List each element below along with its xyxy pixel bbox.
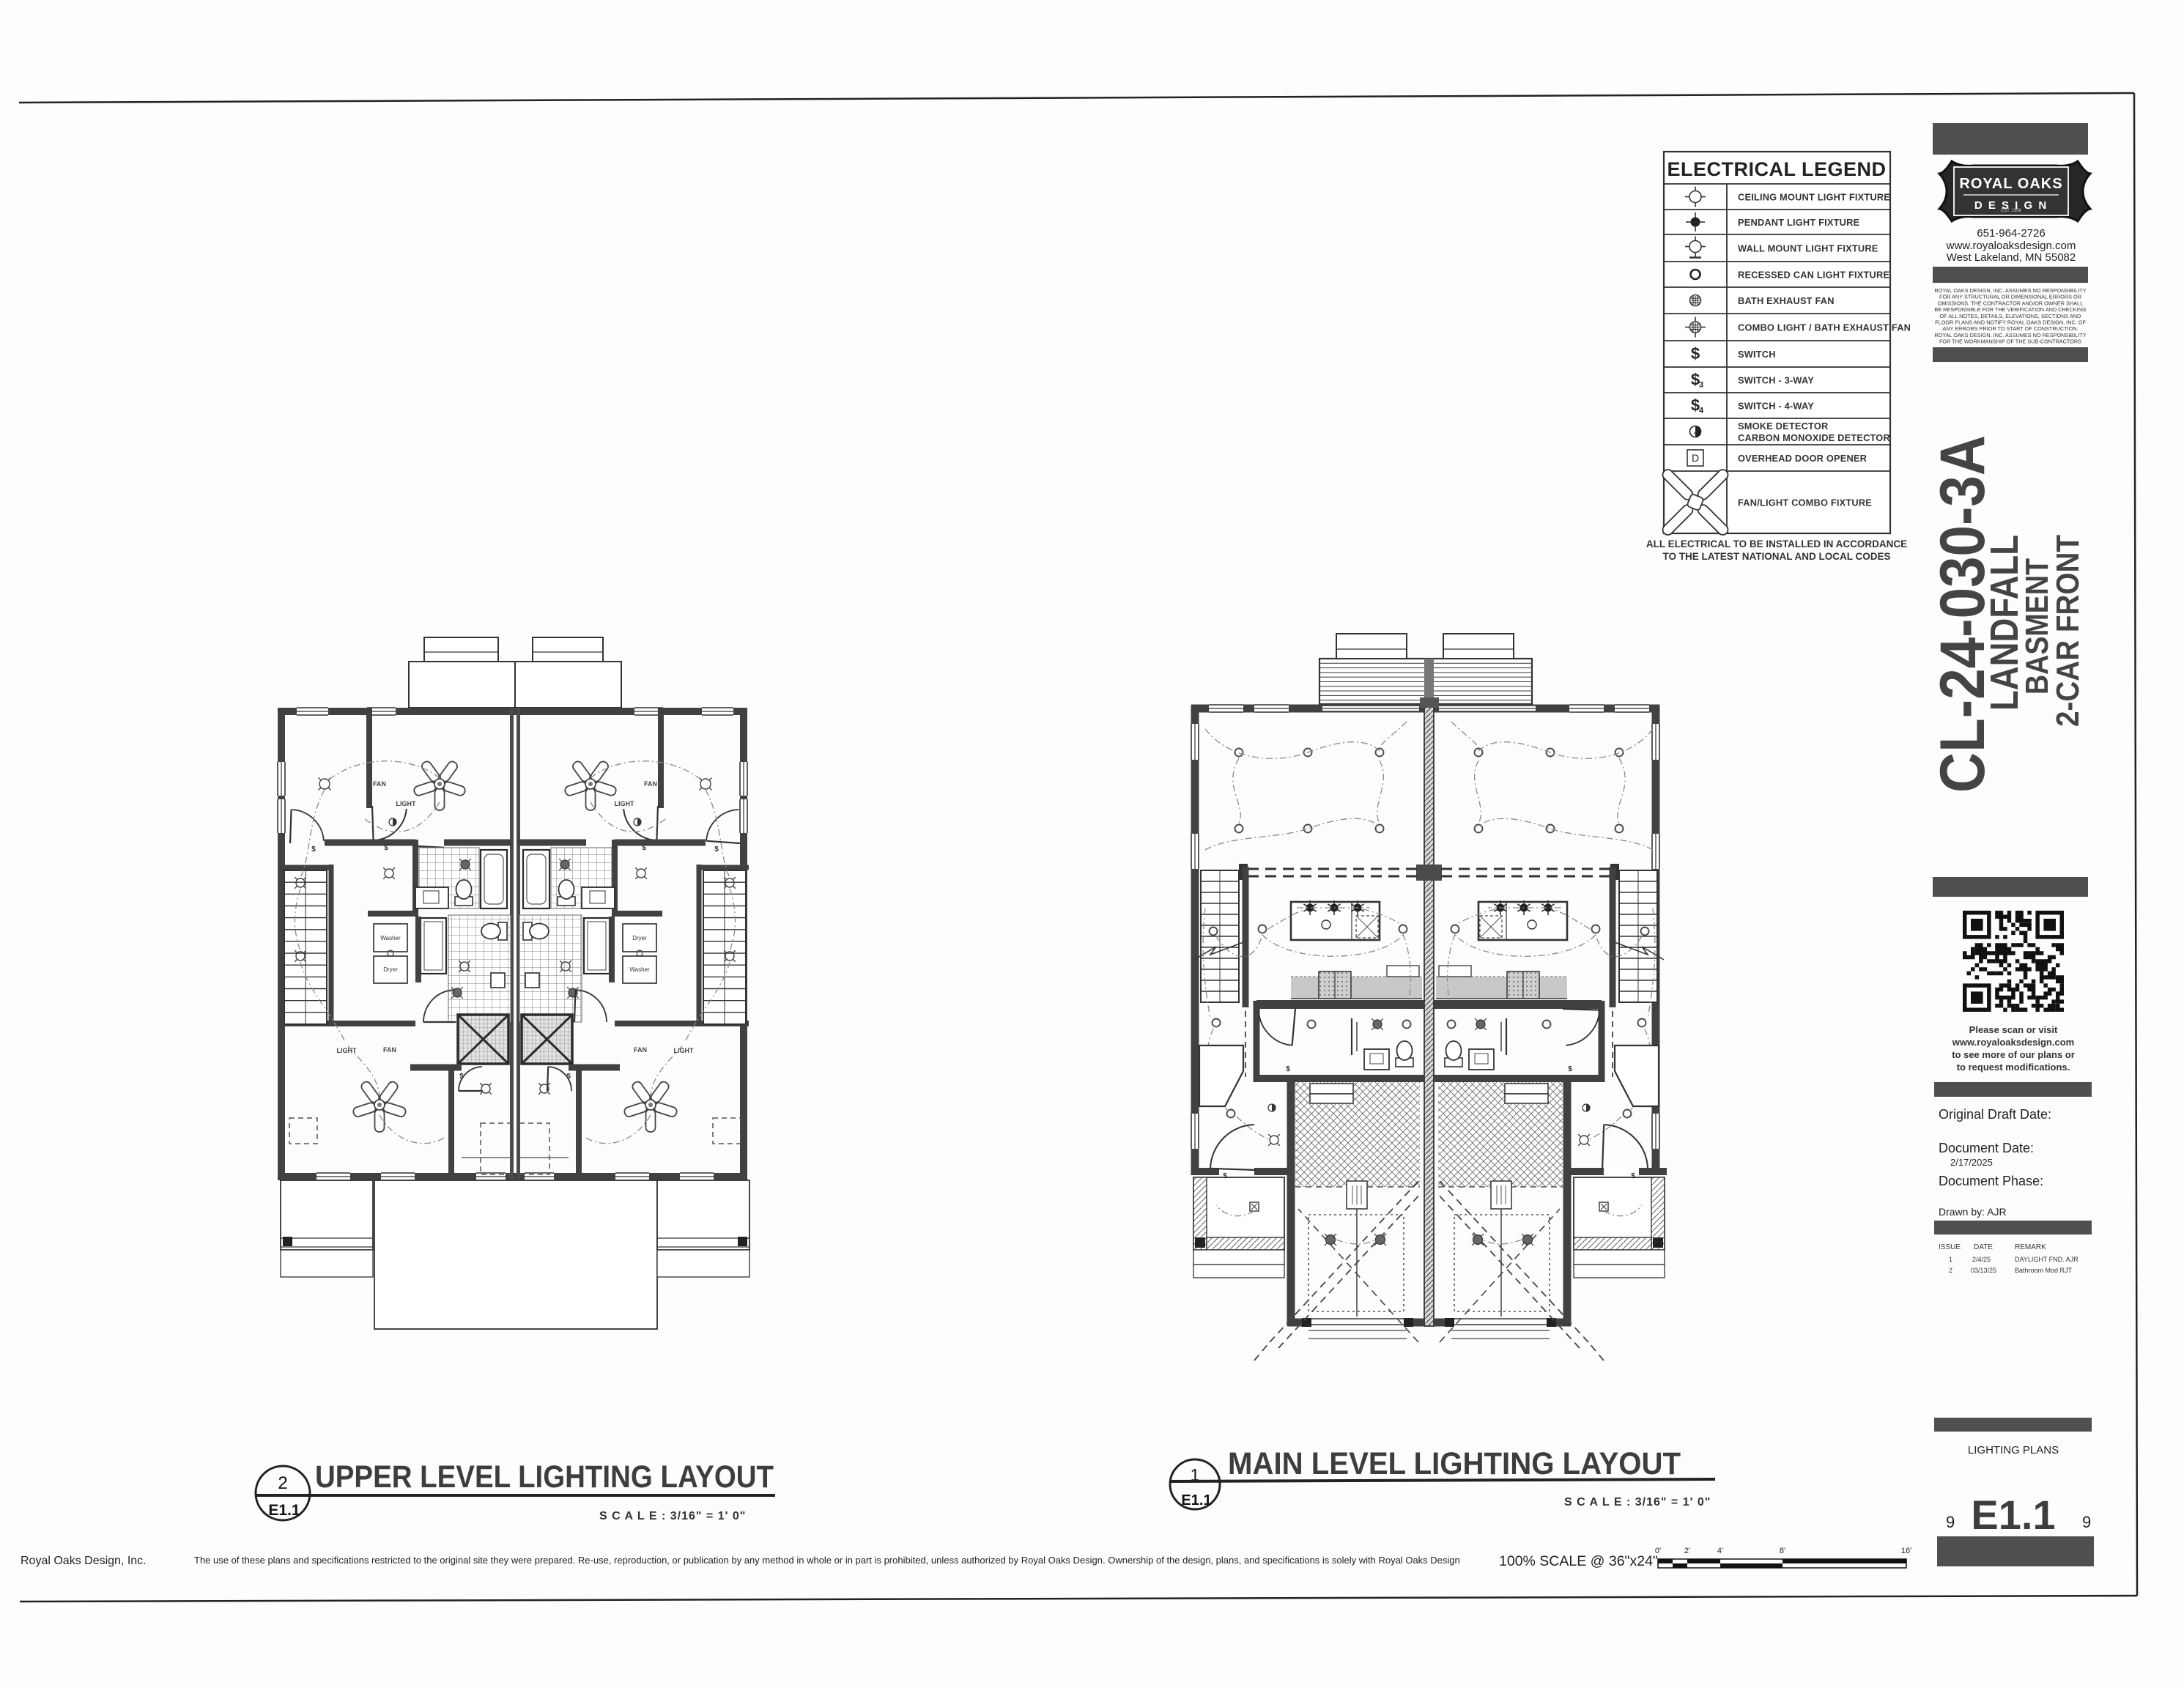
svg-text:651-964-2726: 651-964-2726 [1977, 227, 2045, 240]
svg-text:LIGHT: LIGHT [337, 1047, 357, 1054]
svg-text:3: 3 [1699, 381, 1703, 390]
svg-text:$: $ [1286, 1065, 1290, 1073]
svg-text:4: 4 [1699, 407, 1704, 415]
svg-text:Drawn by: AJR: Drawn by: AJR [1939, 1206, 2007, 1218]
svg-text:CEILING MOUNT LIGHT FIXTURE: CEILING MOUNT LIGHT FIXTURE [1738, 192, 1890, 203]
svg-text:$: $ [311, 845, 316, 854]
svg-text:RECESSED CAN LIGHT FIXTURE: RECESSED CAN LIGHT FIXTURE [1738, 270, 1889, 281]
svg-text:FOR THE WORKMANSHIP OF THE SUB: FOR THE WORKMANSHIP OF THE SUB-CONTRACTO… [1939, 338, 2081, 345]
svg-text:4': 4' [1717, 1547, 1723, 1555]
svg-text:FLOOR PLANS AND NOTIFY ROYAL O: FLOOR PLANS AND NOTIFY ROYAL OAKS DESIGN… [1935, 319, 2086, 326]
svg-text:EST. 1996: EST. 1996 [2001, 209, 2021, 213]
svg-text:FAN/LIGHT COMBO FIXTURE: FAN/LIGHT COMBO FIXTURE [1738, 497, 1872, 508]
svg-text:SWITCH - 4-WAY: SWITCH - 4-WAY [1738, 401, 1814, 412]
svg-text:ROYAL OAKS DESIGN, INC. ASSUME: ROYAL OAKS DESIGN, INC. ASSUMES NO RESPO… [1934, 332, 2086, 338]
svg-text:OF ALL NOTES, DETAILS, ELEVATI: OF ALL NOTES, DETAILS, ELEVATIONS, SECTI… [1940, 313, 2081, 319]
svg-text:Dryer: Dryer [632, 935, 647, 941]
svg-text:ISSUE: ISSUE [1939, 1243, 1961, 1251]
svg-text:FAN: FAN [634, 1046, 647, 1054]
svg-text:Bathroom Mod RJT: Bathroom Mod RJT [2015, 1267, 2073, 1274]
svg-text:100% SCALE @ 36"x24": 100% SCALE @ 36"x24" [1499, 1553, 1658, 1569]
svg-text:COMBO LIGHT / BATH EXHAUST FAN: COMBO LIGHT / BATH EXHAUST FAN [1738, 322, 1911, 333]
svg-text:S C A L E : 3/16" = 1' 0": S C A L E : 3/16" = 1' 0" [599, 1510, 746, 1522]
svg-text:Please scan or visit: Please scan or visit [1969, 1024, 2058, 1035]
svg-text:UPPER LEVEL LIGHTING LAYOUT: UPPER LEVEL LIGHTING LAYOUT [315, 1459, 774, 1495]
svg-text:2': 2' [1684, 1547, 1690, 1555]
svg-text:FAN: FAN [373, 780, 386, 788]
svg-text:$: $ [459, 1073, 464, 1081]
svg-text:E1.1: E1.1 [1181, 1492, 1211, 1509]
svg-text:E1.1: E1.1 [1971, 1492, 2055, 1538]
svg-text:$: $ [714, 845, 719, 854]
svg-text:Dryer: Dryer [383, 966, 398, 973]
svg-text:Washer: Washer [380, 935, 401, 941]
svg-text:BE RESPONSIBLE FOR THE VERIFIC: BE RESPONSIBLE FOR THE VERIFICATION AND … [1934, 306, 2087, 313]
svg-text:1: 1 [1949, 1256, 1952, 1263]
svg-text:LIGHT: LIGHT [615, 800, 634, 807]
svg-text:$: $ [1631, 1172, 1635, 1180]
svg-text:FAN: FAN [644, 780, 657, 788]
svg-text:www.royaloaksdesign.com: www.royaloaksdesign.com [1952, 1037, 2074, 1048]
svg-text:2/4/25: 2/4/25 [1972, 1256, 1991, 1263]
svg-text:9: 9 [2082, 1513, 2091, 1531]
svg-text:9: 9 [1946, 1513, 1955, 1531]
svg-text:E1.1: E1.1 [268, 1502, 300, 1519]
svg-text:16': 16' [1901, 1547, 1911, 1555]
svg-text:OVERHEAD DOOR OPENER: OVERHEAD DOOR OPENER [1738, 453, 1867, 464]
svg-text:0': 0' [1655, 1547, 1661, 1555]
svg-text:Washer: Washer [629, 966, 650, 973]
svg-text:BATH EXHAUST FAN: BATH EXHAUST FAN [1738, 295, 1835, 306]
svg-text:$: $ [1691, 344, 1700, 363]
svg-text:8': 8' [1780, 1547, 1785, 1555]
svg-text:LIGHT: LIGHT [396, 800, 416, 807]
svg-text:www.royaloaksdesign.com: www.royaloaksdesign.com [1946, 240, 2076, 252]
svg-text:$: $ [384, 844, 388, 852]
svg-text:2: 2 [1949, 1267, 1952, 1274]
svg-text:Original Draft Date:: Original Draft Date: [1939, 1107, 2051, 1122]
svg-text:to request modifications.: to request modifications. [1957, 1062, 2070, 1073]
svg-text:2-CAR FRONT: 2-CAR FRONT [2050, 535, 2086, 727]
svg-text:Royal Oaks Design, Inc.: Royal Oaks Design, Inc. [21, 1555, 147, 1567]
svg-text:ROYAL OAKS DESIGN, INC. ASSUME: ROYAL OAKS DESIGN, INC. ASSUMES NO RESPO… [1934, 287, 2086, 294]
svg-text:$: $ [642, 844, 646, 852]
svg-text:S C A L E : 3/16" = 1' 0": S C A L E : 3/16" = 1' 0" [1564, 1496, 1711, 1509]
svg-text:LIGHTING PLANS: LIGHTING PLANS [1968, 1444, 2059, 1456]
svg-text:PENDANT LIGHT FIXTURE: PENDANT LIGHT FIXTURE [1738, 217, 1860, 228]
svg-text:OMISSIONS. THE CONTRACTOR AND: OMISSIONS. THE CONTRACTOR AND/OR OWNER S… [1938, 300, 2083, 306]
svg-text:2: 2 [278, 1473, 287, 1493]
svg-text:CARBON MONOXIDE DETECTOR: CARBON MONOXIDE DETECTOR [1738, 432, 1890, 443]
svg-text:FOR ANY STRUCTURAL OR DIMENSIO: FOR ANY STRUCTURAL OR DIMENSIONAL ERRORS… [1939, 294, 2081, 300]
svg-text:Document Phase:: Document Phase: [1939, 1174, 2043, 1188]
svg-text:LIGHT: LIGHT [674, 1047, 694, 1054]
svg-text:ALL ELECTRICAL TO BE INSTALLED: ALL ELECTRICAL TO BE INSTALLED IN ACCORD… [1646, 538, 1907, 549]
svg-text:West Lakeland, MN 55082: West Lakeland, MN 55082 [1947, 251, 2076, 264]
svg-text:WALL MOUNT LIGHT FIXTURE: WALL MOUNT LIGHT FIXTURE [1738, 243, 1878, 254]
svg-text:$: $ [566, 1073, 571, 1081]
svg-text:D: D [1692, 452, 1699, 464]
svg-text:MAIN LEVEL LIGHTING LAYOUT: MAIN LEVEL LIGHTING LAYOUT [1228, 1446, 1681, 1481]
svg-text:DAYLIGHT FND. AJR: DAYLIGHT FND. AJR [2015, 1256, 2078, 1263]
svg-text:DATE: DATE [1974, 1243, 1993, 1251]
svg-text:TO THE LATEST NATIONAL AND LOC: TO THE LATEST NATIONAL AND LOCAL CODES [1662, 551, 1890, 562]
svg-text:ROYAL OAKS: ROYAL OAKS [1959, 176, 2062, 192]
svg-text:Document Date:: Document Date: [1939, 1141, 2034, 1155]
svg-text:03/13/25: 03/13/25 [1971, 1267, 1996, 1274]
svg-text:$: $ [1568, 1065, 1572, 1073]
svg-text:SMOKE DETECTOR: SMOKE DETECTOR [1738, 421, 1828, 432]
svg-text:FAN: FAN [383, 1046, 396, 1054]
svg-text:$: $ [1223, 1172, 1227, 1180]
svg-text:The use of these plans and spe: The use of these plans and specification… [194, 1555, 1460, 1566]
svg-text:SWITCH - 3-WAY: SWITCH - 3-WAY [1738, 375, 1814, 386]
svg-text:2/17/2025: 2/17/2025 [1950, 1157, 1993, 1168]
svg-text:REMARK: REMARK [2015, 1243, 2046, 1251]
svg-text:to see more of our plans or: to see more of our plans or [1952, 1049, 2075, 1060]
svg-text:ELECTRICAL LEGEND: ELECTRICAL LEGEND [1667, 158, 1886, 180]
svg-text:ANY ERRORS PRIOR TO START OF C: ANY ERRORS PRIOR TO START OF CONSTRUCTIO… [1942, 325, 2078, 332]
svg-text:SWITCH: SWITCH [1738, 349, 1776, 360]
